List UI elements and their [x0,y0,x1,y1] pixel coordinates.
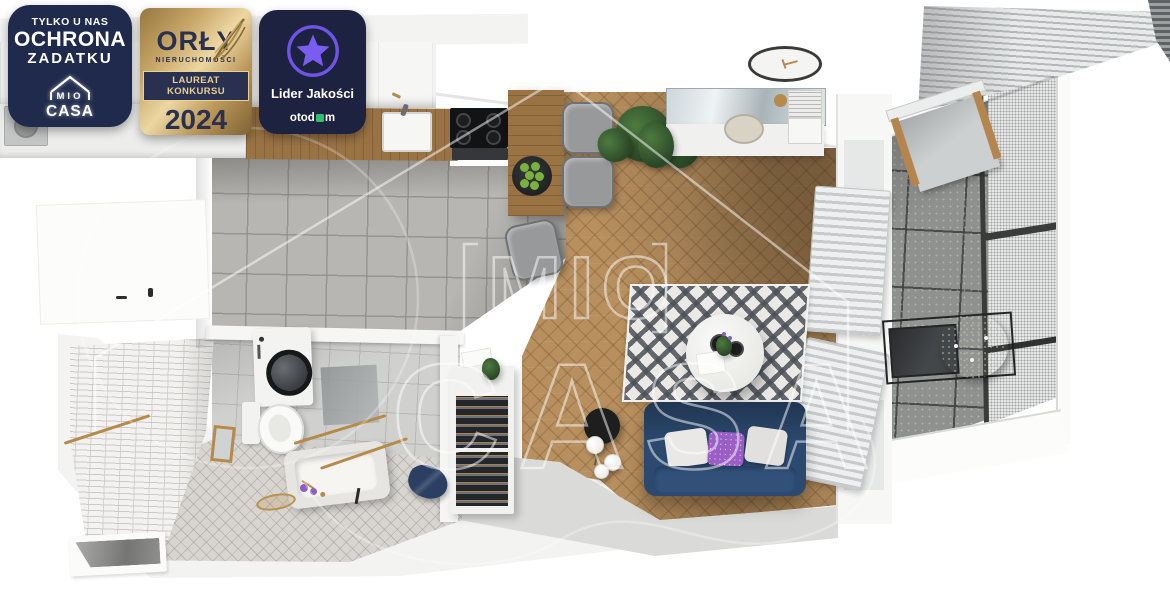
toilet-seat [266,412,294,444]
washer-door [265,349,313,397]
badge-line: OCHRONA [14,29,126,51]
star-icon [282,20,344,82]
oven-front [452,148,508,160]
balcony-edge-post [1056,52,1070,444]
otodom-logo: otod m [290,112,335,124]
lamp-bulb [586,436,604,454]
radiator [805,186,891,337]
washer-detergent-drawer [257,345,260,359]
otodom-text: m [325,112,335,124]
award-year: 2024 [165,104,227,135]
niche-opening [75,538,160,568]
badge-line: ZADATKU [27,51,112,68]
desk-stool [724,114,764,144]
books [788,118,822,144]
dining-chair [503,217,566,283]
otodom-green-square-icon [316,114,324,122]
apartment-render: MIO CASA TYLKO U NAS OCHRONA ZADATKU MIO… [0,0,1170,592]
gold-knob [320,492,326,498]
bathtub-basin [294,449,378,498]
badge-quality-leader: Lider Jakości otod m [259,10,366,134]
feather-icon [212,16,246,64]
shower-panel [321,365,380,426]
award-banner: LAUREAT KONKURSU [143,71,249,101]
breakfast-bar [508,90,564,216]
wall-fixture [116,296,127,299]
wall-mirror [210,425,236,463]
sofa [644,402,806,496]
wall-clock [748,46,822,82]
balcony-plant [940,314,1008,378]
mio-casa-logo: MIO CASA [37,70,103,122]
wall-niche [69,532,167,577]
kitchen-sink [382,112,432,152]
shoe-cabinet [450,366,514,514]
purple-dumbbell [310,488,317,495]
purple-dumbbell [300,484,308,492]
shoe-shelf [456,396,508,448]
quality-label: Lider Jakości [271,86,354,101]
cooktop [450,108,508,148]
washer-control [259,337,264,342]
shoe-shelf [456,452,508,506]
badge-line: TYLKO U NAS [32,16,109,28]
badge-deposit-protection: TYLKO U NAS OCHRONA ZADATKU MIO CASA [8,5,132,127]
left-wall-panel [36,199,210,325]
svg-text:MIO: MIO [57,91,84,102]
gold-vase [774,94,787,107]
small-plant [482,358,500,380]
wall-fixture [148,288,153,297]
books [788,90,822,118]
lamp-bulb [594,464,609,479]
sofa-seat [654,466,796,492]
cushion [664,427,711,468]
fruit-plate [512,156,552,196]
house-icon [51,77,89,92]
otodom-text: otod [290,112,315,124]
washing-machine [253,327,314,407]
cushion-purple [707,431,745,467]
bar-stool [562,156,614,208]
round-coffee-table [686,314,764,392]
desk-plant [638,122,674,168]
badge-orly-award: ORŁY NIERUCHOMOŚCI LAUREAT KONKURSU 2024 [140,8,252,135]
cushion [744,425,789,466]
svg-text:CASA: CASA [46,103,94,120]
